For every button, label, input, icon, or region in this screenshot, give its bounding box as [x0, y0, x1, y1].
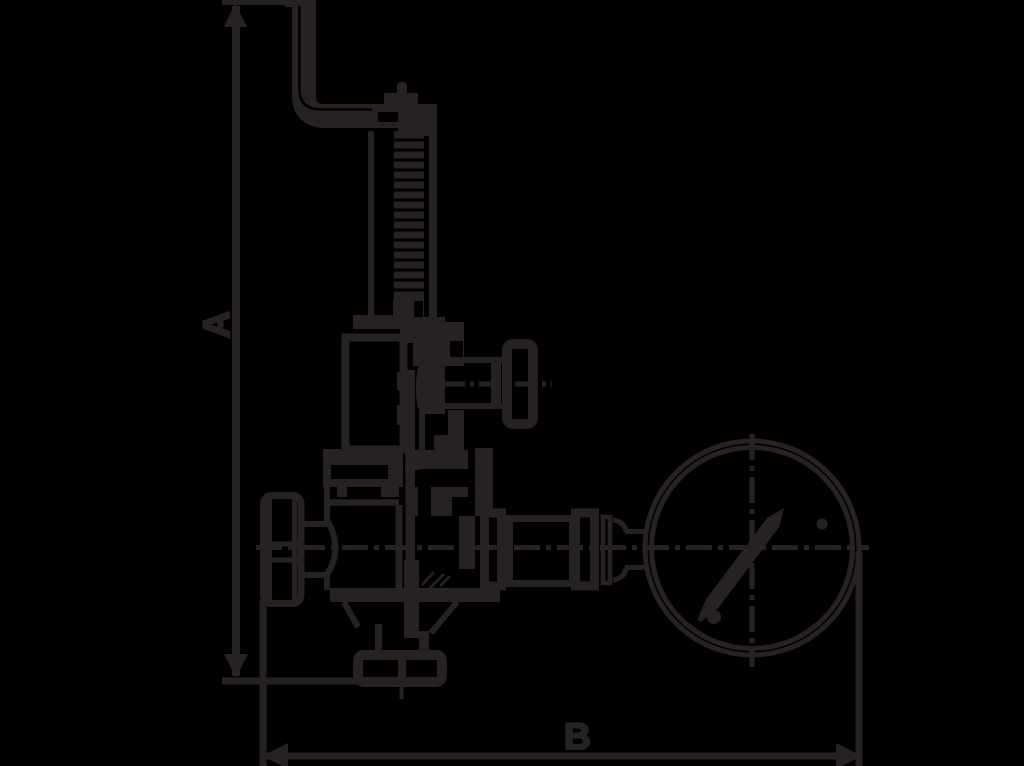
svg-text:A: A — [196, 311, 237, 338]
svg-text:B: B — [564, 716, 591, 757]
